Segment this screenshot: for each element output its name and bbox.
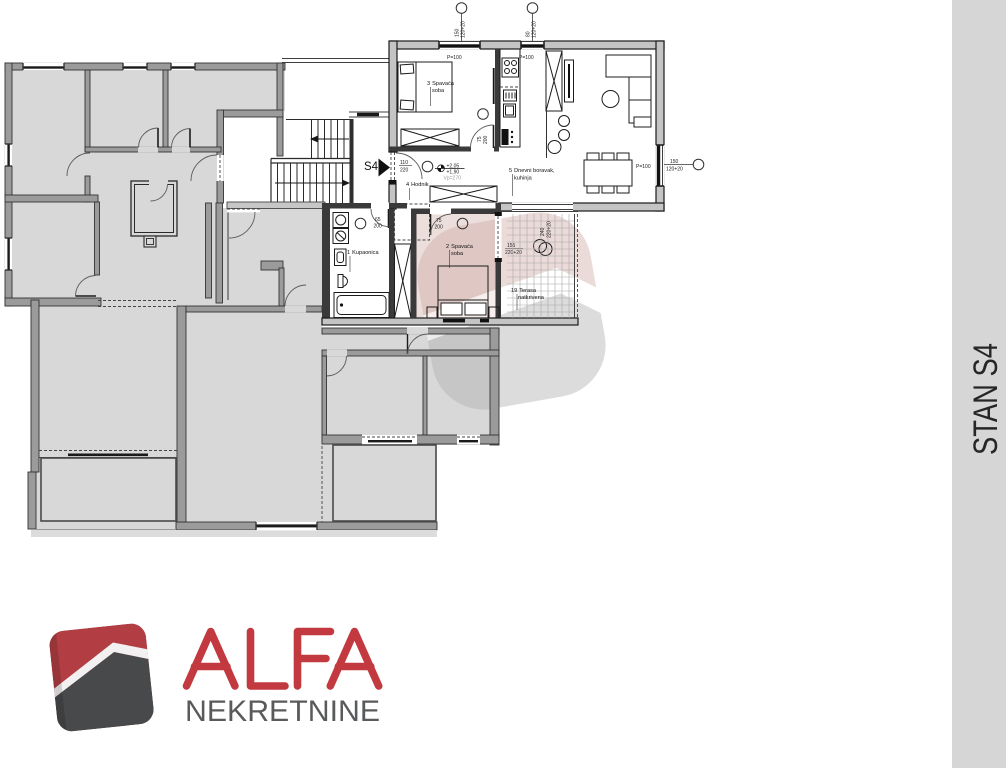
svg-text:150: 150 (670, 159, 679, 165)
svg-text:220+20: 220+20 (505, 250, 522, 256)
svg-text:75: 75 (436, 218, 442, 224)
svg-text:1Kupaonica: 1Kupaonica (347, 250, 379, 256)
svg-text:220: 220 (400, 168, 409, 174)
svg-text:120+20: 120+20 (532, 21, 538, 38)
svg-text:220+20: 220+20 (547, 221, 553, 238)
svg-text:200: 200 (435, 225, 444, 231)
svg-text:5Dnevni boravak,: 5Dnevni boravak, (509, 168, 555, 174)
svg-text:3Spavaća: 3Spavaća (427, 81, 455, 87)
svg-text:P=100: P=100 (447, 55, 462, 61)
svg-text:soba: soba (451, 251, 464, 257)
svg-text:120+20: 120+20 (461, 21, 467, 38)
svg-text:200: 200 (374, 224, 383, 230)
svg-text:Vp=270: Vp=270 (444, 176, 462, 182)
svg-text:NEKRETNINE: NEKRETNINE (185, 695, 380, 728)
svg-text:P=100: P=100 (636, 164, 651, 170)
svg-text:65: 65 (375, 217, 381, 223)
svg-text:soba: soba (432, 88, 445, 94)
svg-text:S4: S4 (364, 161, 379, 173)
svg-text:155: 155 (507, 243, 516, 249)
svg-text:natkrivena: natkrivena (518, 295, 545, 301)
svg-text:110: 110 (400, 160, 408, 166)
svg-text:STAN S4: STAN S4 (967, 343, 1005, 455)
svg-text:200: 200 (483, 135, 489, 144)
svg-text:19Terasa: 19Terasa (511, 288, 537, 294)
svg-text:2Spavaća: 2Spavaća (446, 244, 474, 250)
svg-text:120+20: 120+20 (666, 167, 683, 173)
svg-text:P=100: P=100 (519, 55, 534, 61)
svg-text:240: 240 (540, 227, 546, 236)
svg-text:kuhinja: kuhinja (514, 176, 533, 182)
